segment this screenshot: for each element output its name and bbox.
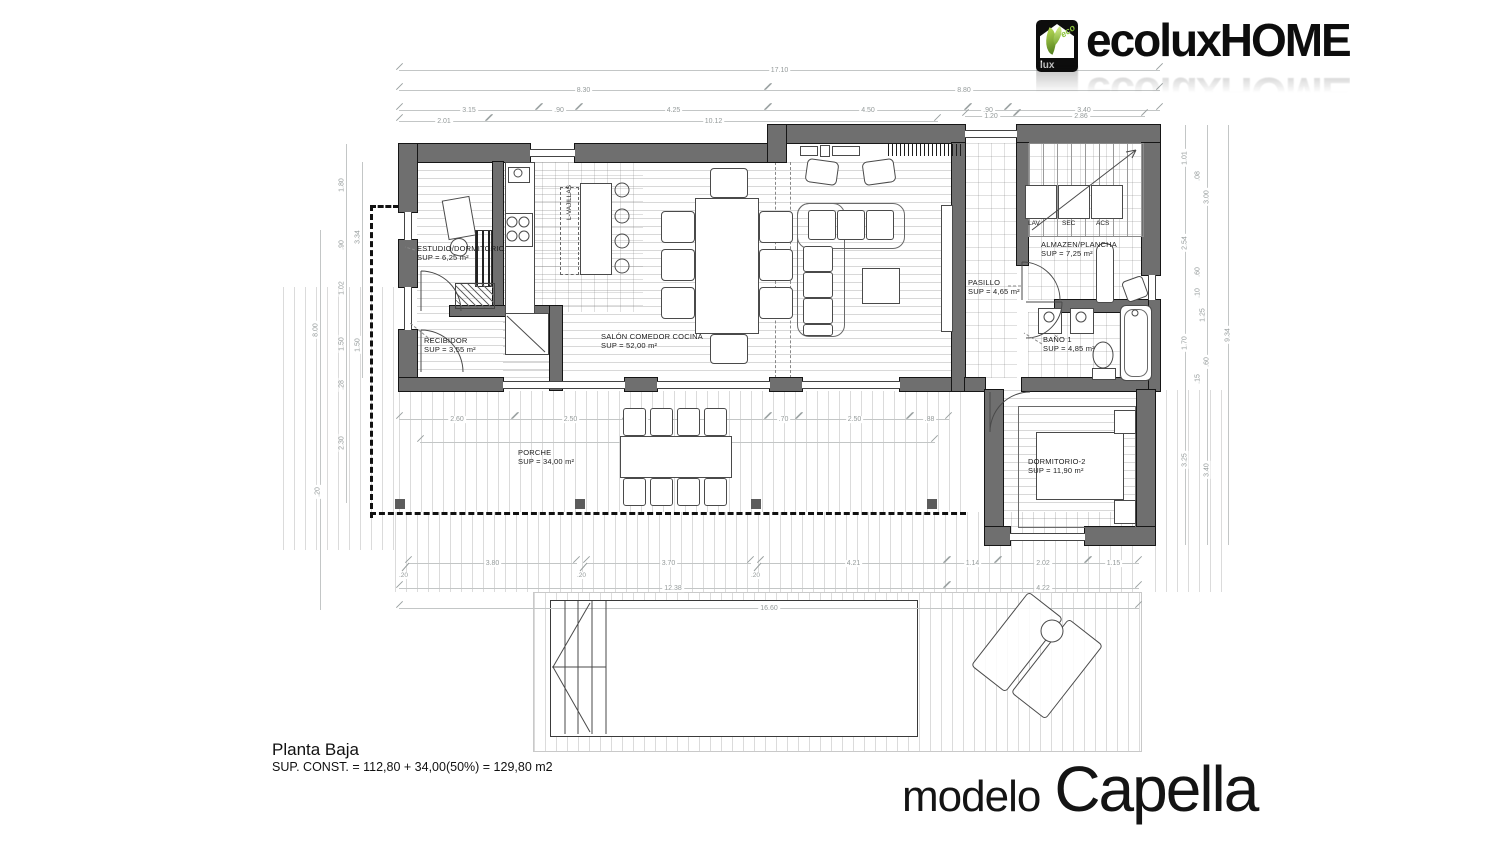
porch-chair <box>704 478 727 506</box>
wall-segment <box>985 527 1010 545</box>
sofa-cushion <box>803 298 833 324</box>
dining-chair <box>759 249 793 281</box>
pasillo-floor <box>965 143 1017 378</box>
dim-label: 2.01 <box>435 118 453 125</box>
dim-label: 1.50 <box>355 336 362 354</box>
dining-chair <box>661 287 695 319</box>
dim-label: 10.12 <box>703 118 725 125</box>
dim-label: 16.60 <box>758 605 780 612</box>
pool <box>550 600 918 737</box>
sofa-cushion <box>803 324 833 336</box>
wall-segment <box>770 378 802 391</box>
dim-label: 2.50 <box>846 416 864 423</box>
kitchen-sink <box>508 167 530 183</box>
kitchen-island <box>580 183 612 275</box>
plan-title: Planta Baja <box>272 740 359 760</box>
room-label-almacen: ALMAZEN/PLANCHASUP = 7,25 m² <box>1041 240 1117 258</box>
dim-label: 4.50 <box>859 107 877 114</box>
model-title: modelo Capella <box>902 752 1257 826</box>
water-heater <box>1091 185 1123 219</box>
dim-label: .60 <box>1195 265 1202 279</box>
porch-post <box>395 499 405 509</box>
dim-label: .10 <box>1195 286 1202 300</box>
dim-label: .90 <box>552 107 566 114</box>
porch-chair <box>704 408 727 436</box>
dim-label: 2.60 <box>448 416 466 423</box>
wall-segment <box>1017 125 1160 143</box>
nightstand <box>1114 500 1136 524</box>
dining-chair <box>759 211 793 243</box>
dim-label: 3.25 <box>1182 451 1189 469</box>
room-label-estudio: ESTUDIO/DORMITORIOSUP = 6,25 m² <box>417 244 505 262</box>
label-acs: ACS <box>1096 220 1109 227</box>
logo-wordmark: ecoluxHOME <box>1086 20 1350 60</box>
window <box>530 149 575 157</box>
porch-post <box>751 499 761 509</box>
dim-label: .28 <box>339 378 346 392</box>
label-vajillas: L-VAJILLAS <box>566 185 573 220</box>
room-label-pasillo: PASILLOSUP = 4,65 m² <box>968 278 1020 296</box>
dim-label: 3.40 <box>1204 461 1211 479</box>
nightstand <box>1114 410 1136 434</box>
glass-door <box>657 381 770 389</box>
porch-chair <box>623 408 646 436</box>
glass-door <box>503 381 625 389</box>
label-lav: LAV <box>1028 220 1040 227</box>
porch-roof-dashed-bottom <box>370 512 966 515</box>
dim-label: 1.14 <box>964 560 982 567</box>
wall-segment <box>952 143 965 391</box>
wall-segment <box>1142 143 1160 275</box>
wall-segment <box>399 144 417 212</box>
dim-label: 2.50 <box>562 416 580 423</box>
dim-label: 1.80 <box>339 176 346 194</box>
dim-label: .20 <box>576 572 587 579</box>
dim-label: 8.80 <box>955 87 973 94</box>
sofa-cushion <box>837 210 865 240</box>
dim-label: 3.80 <box>484 560 502 567</box>
plan-area-text: SUP. CONST. = 112,80 + 34,00(50%) = 129,… <box>272 760 553 774</box>
dim-label: 8.00 <box>313 321 320 339</box>
dim-label: 1.02 <box>339 279 346 297</box>
dim-label: .20 <box>315 485 322 499</box>
dim-label: 3.00 <box>1204 188 1211 206</box>
dim-label: 2.30 <box>339 434 346 452</box>
sofa-cushion <box>803 246 833 272</box>
label-sec: SEC <box>1062 220 1075 227</box>
dim-label: 1.15 <box>1105 560 1123 567</box>
window <box>1010 533 1085 541</box>
wall-segment <box>550 306 562 390</box>
wall-segment <box>399 378 503 391</box>
dryer <box>1058 185 1090 219</box>
dim-label: 17.10 <box>769 67 791 74</box>
sofa-cushion <box>808 210 836 240</box>
room-label-bano: BAÑO 1SUP = 4,85 m² <box>1043 335 1095 353</box>
dim-label: 4.25 <box>665 107 683 114</box>
sofa-cushion <box>803 272 833 298</box>
dim-label: 3.34 <box>355 228 362 246</box>
glass-door <box>802 381 900 389</box>
porch-chair <box>650 478 673 506</box>
porch-post <box>927 499 937 509</box>
dim-label: 3.70 <box>660 560 678 567</box>
room-label-porche: PORCHESUP = 34,00 m² <box>518 448 574 466</box>
cooktop <box>505 213 533 247</box>
porch-post <box>575 499 585 509</box>
dining-chair <box>710 168 748 198</box>
toilet-tank <box>1092 368 1116 380</box>
porch-table <box>620 436 732 478</box>
dim-label: .70 <box>777 416 791 423</box>
wall-segment <box>985 390 1003 545</box>
dim-label: .08 <box>1195 169 1202 183</box>
wall-segment <box>768 125 786 162</box>
wall-segment <box>965 378 985 391</box>
wall-segment <box>625 378 657 391</box>
dim-label: 1.25 <box>1200 306 1207 324</box>
coffee-table <box>862 268 900 304</box>
wall-segment <box>399 144 530 162</box>
wall-segment <box>768 125 965 143</box>
dim-label: 2.02 <box>1034 560 1052 567</box>
dim-label: 4.22 <box>1034 585 1052 592</box>
dim-label: 1.20 <box>982 113 1000 120</box>
sofa-cushion <box>866 210 894 240</box>
armchair <box>804 158 839 186</box>
right-deck <box>1155 390 1230 592</box>
dim-label: 2.54 <box>1182 234 1189 252</box>
dim-label: .20 <box>398 572 409 579</box>
dim-label: .20 <box>750 572 761 579</box>
dim-label: 2.86 <box>1072 113 1090 120</box>
dim-label: 8.30 <box>575 87 593 94</box>
pantry-corner <box>505 313 549 355</box>
floorplan-sheet: 17.10 8.30 8.80 3.15 .90 4.25 4.50 .90 3… <box>0 0 1500 844</box>
tv-panel <box>941 205 953 332</box>
bathroom-sink <box>1070 308 1094 334</box>
room-label-salon: SALÓN COMEDOR COCINASUP = 52,00 m² <box>601 332 703 350</box>
dining-chair <box>661 249 695 281</box>
dining-table <box>695 198 759 334</box>
dim-label: 1.50 <box>339 335 346 353</box>
porch-roof-dashed-left <box>370 205 373 518</box>
model-label: modelo <box>902 772 1040 822</box>
dim-label: .90 <box>339 238 346 252</box>
porch-chair <box>677 408 700 436</box>
dining-chair <box>759 287 793 319</box>
wall-segment <box>1085 527 1155 545</box>
wall-segment <box>1137 390 1155 545</box>
wall-segment <box>399 240 417 287</box>
porch-roof-dashed-top <box>370 205 399 208</box>
curtain-hatch <box>888 144 962 156</box>
porch-chair <box>677 478 700 506</box>
window <box>1148 275 1156 300</box>
dim-label: 3.15 <box>460 107 478 114</box>
dim-label: .15 <box>1195 372 1202 386</box>
porch-chair <box>623 478 646 506</box>
tv-console <box>832 146 860 156</box>
armchair <box>861 158 896 186</box>
porch-chair <box>650 408 673 436</box>
tv-console <box>820 145 830 157</box>
dim-label: 1.01 <box>1182 149 1189 167</box>
model-name: Capella <box>1054 752 1257 826</box>
logo-reflection: ecoluxHOME <box>1036 62 1350 114</box>
dim-label: 12.38 <box>662 585 684 592</box>
dim-label: 1.70 <box>1182 334 1189 352</box>
bathtub-inner <box>1124 309 1148 377</box>
window <box>404 287 412 330</box>
dim-label: 9.34 <box>1225 326 1232 344</box>
dim-label: .60 <box>1204 355 1211 369</box>
left-deck <box>283 287 395 550</box>
wall-segment <box>575 144 768 162</box>
dining-chair <box>710 334 748 364</box>
dining-chair <box>661 211 695 243</box>
bathroom-sink <box>1038 308 1062 334</box>
room-label-recibidor: RECIBIDORSUP = 3,55 m² <box>424 336 476 354</box>
room-label-dormitorio2: DORMITORIO-2SUP = 11,90 m² <box>1028 457 1086 475</box>
dim-label: .88 <box>923 416 937 423</box>
wardrobe <box>455 283 495 309</box>
washer <box>1025 185 1057 219</box>
window <box>404 212 412 240</box>
window <box>965 130 1017 138</box>
dim-label: 4.21 <box>845 560 863 567</box>
tv-console <box>800 146 818 156</box>
